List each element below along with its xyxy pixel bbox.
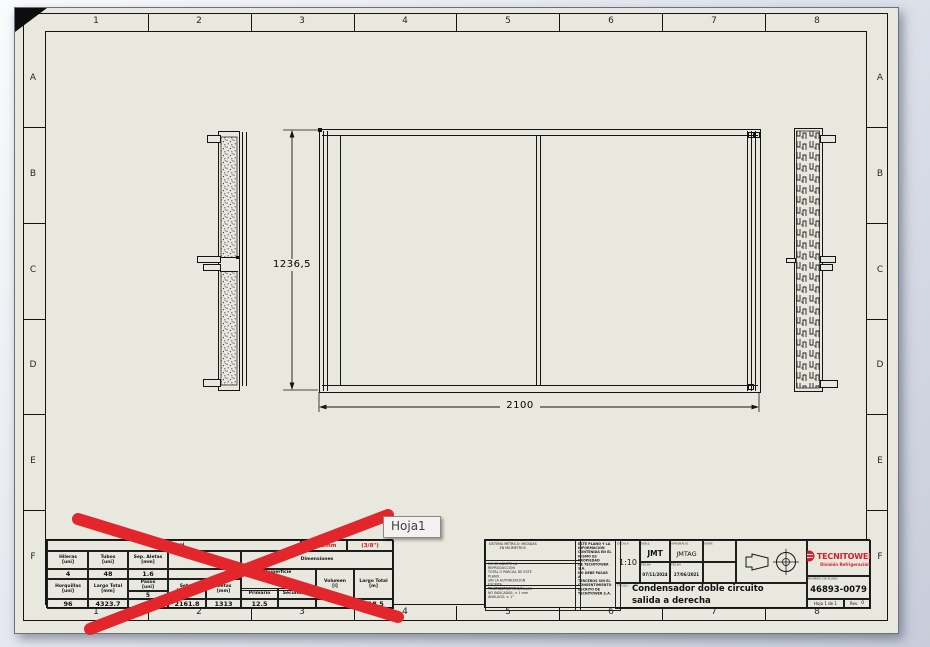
drawing-title-cell: TÍTULO: Condensador doble circuito salid… bbox=[615, 582, 808, 609]
verified-by-cell: VERIF. bbox=[702, 540, 737, 563]
zone-col-label: 2 bbox=[189, 16, 209, 26]
zone-col-label: 5 bbox=[498, 16, 518, 26]
company-subtitle: División Refrigeración bbox=[820, 562, 870, 567]
width-dimension[interactable]: 2100 bbox=[500, 400, 540, 412]
checked-date-cell: FECHA 27/06/2021 bbox=[669, 561, 704, 584]
zone-row-label: E bbox=[25, 456, 41, 466]
units-note: SISTEMA MÉTRICO: MEDIDAS EN MILÍMETROS bbox=[488, 542, 538, 550]
condenser-front-view[interactable] bbox=[319, 129, 761, 393]
drawn-by-cell: DIBUJ. JMT bbox=[639, 540, 671, 563]
zone-row-label: A bbox=[872, 73, 888, 83]
zone-row-label: B bbox=[872, 169, 888, 179]
company-name: TECNITOWER bbox=[817, 552, 871, 561]
tolerance-note: TOLERANCIAS GENERALES NO INDICADAS: ± 1 … bbox=[488, 587, 538, 599]
zone-col-label: 1 bbox=[86, 16, 106, 26]
drawing-title: Condensador doble circuito salida a dere… bbox=[616, 584, 764, 607]
revision-value: 0 bbox=[861, 601, 864, 606]
zone-row-label: C bbox=[872, 265, 888, 275]
zone-row-label: D bbox=[25, 360, 41, 370]
drawing-sheet: 1 2 3 4 5 6 7 8 1 2 3 4 5 6 7 8 A B C D … bbox=[14, 7, 899, 634]
checked-by-cell: APROBADO JMTAG bbox=[669, 540, 704, 563]
height-dimension[interactable]: 1236,5 bbox=[267, 259, 317, 271]
tube-sheet-edge bbox=[242, 132, 247, 386]
scale-cell: ESCALA 1:10 bbox=[615, 540, 641, 584]
zone-row-label: A bbox=[25, 73, 41, 83]
zone-row-label: C bbox=[25, 265, 41, 275]
third-angle-projection-icon bbox=[736, 541, 807, 583]
zone-col-label: 7 bbox=[704, 16, 724, 26]
zone-row-label: E bbox=[872, 456, 888, 466]
scale-value: 1:10 bbox=[619, 558, 637, 567]
property-note: ESTE PLANO Y LA INFORMACIÓN CONTENIDA EN… bbox=[578, 542, 611, 596]
drawing-number-cell: NÚMERO DE PLANO 46893-0079 bbox=[806, 575, 871, 600]
zone-col-label: 3 bbox=[292, 16, 312, 26]
zone-row-label: F bbox=[872, 552, 888, 562]
sheet-number-cell: Hoja 1 de 1 bbox=[806, 598, 845, 609]
drawing-number: 46893-0079 bbox=[810, 585, 867, 595]
projection-cell bbox=[735, 540, 808, 584]
sheet-tab-tooltip: Hoja1 bbox=[383, 516, 441, 538]
zone-col-label: 8 bbox=[807, 16, 827, 26]
zone-col-label: 4 bbox=[395, 16, 415, 26]
coil-data-table: General 9.52mm (3/8") Hileras [uni] Tubo… bbox=[46, 539, 393, 608]
zone-col-label: 6 bbox=[601, 16, 621, 26]
zone-row-label: F bbox=[25, 552, 41, 562]
circuit-divider bbox=[536, 135, 537, 385]
circuit-divider bbox=[540, 135, 541, 385]
tecnitower-logo-icon bbox=[806, 550, 815, 562]
zone-row-label: D bbox=[872, 360, 888, 370]
drawn-date-cell: FECHA 07/11/2024 bbox=[639, 561, 671, 584]
title-block: SISTEMA MÉTRICO: MEDIDAS EN MILÍMETROS N… bbox=[484, 539, 870, 608]
zone-col-label: 4 bbox=[395, 607, 415, 617]
company-logo-cell: TECNITOWER División Refrigeración bbox=[806, 540, 871, 577]
zone-row-label: B bbox=[25, 169, 41, 179]
revision-cell: Rev. 0 bbox=[843, 598, 871, 609]
